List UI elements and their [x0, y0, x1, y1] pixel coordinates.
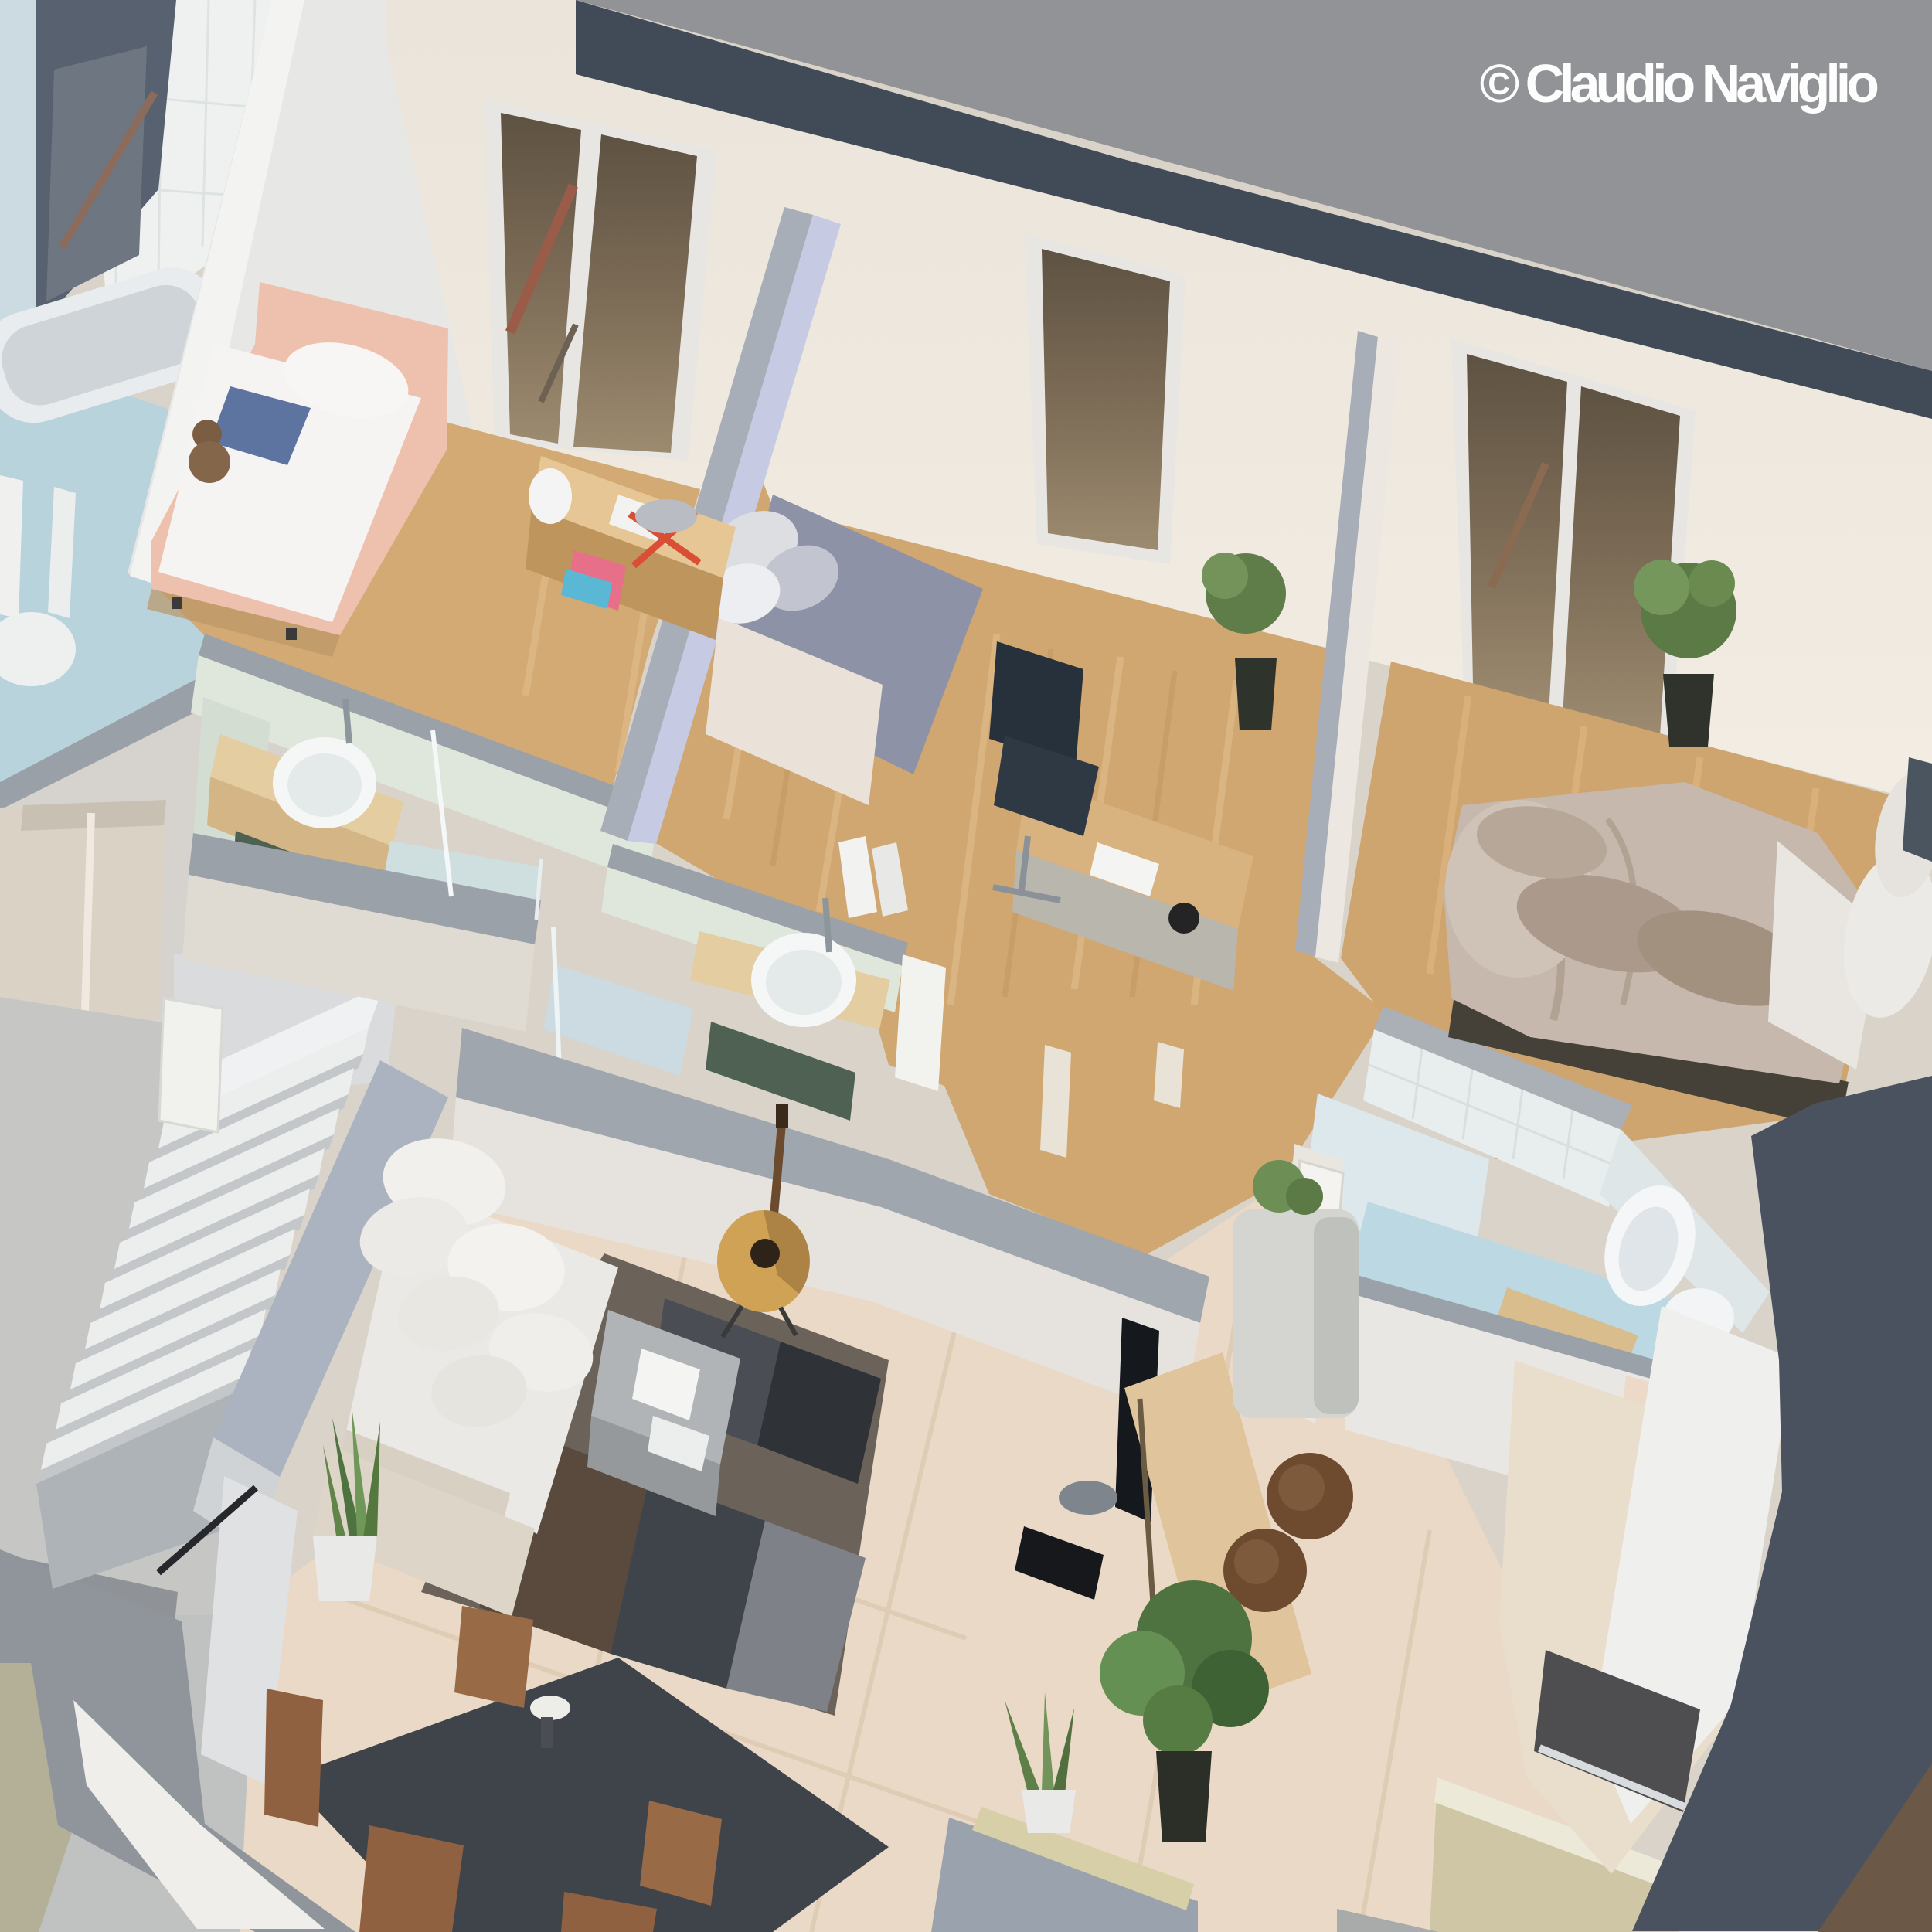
svg-text:© Claudio Naviglio: © Claudio Naviglio [1480, 53, 1879, 114]
